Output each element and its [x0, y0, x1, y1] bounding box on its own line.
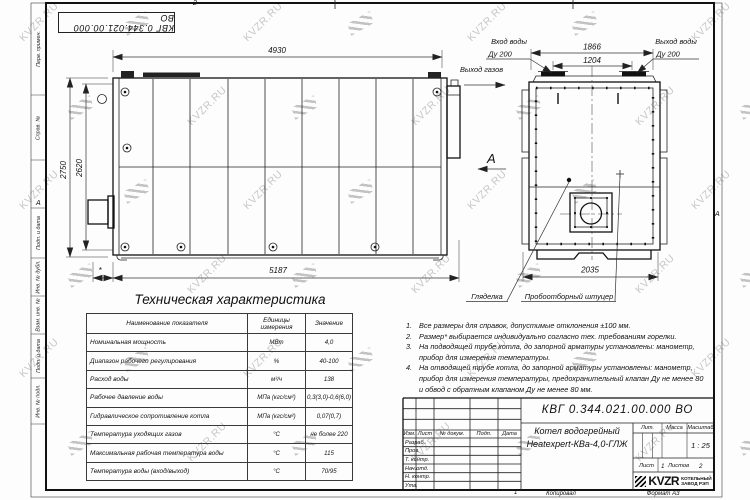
tb-col-list: Лист	[416, 431, 434, 437]
spec-header-name: Наименование показателя	[87, 314, 248, 334]
drawing-sheet: KVZR.RUKVZR.RUKVZR.RUKVZR.RUKVZR.RUKVZR.…	[0, 0, 750, 500]
tb-col-podp: Подп.	[470, 431, 498, 437]
tb-sheet-label: Лист	[639, 463, 654, 469]
field-inv-dubl: Инв. № дубл.	[31, 258, 46, 296]
dim-2035: 2035	[580, 266, 599, 275]
tb-row-nachotd: Нач.отд.	[405, 466, 429, 472]
sampling-fitting-label: Пробоотборный штуцер	[525, 292, 613, 301]
field-sprav-no: Справ. №	[31, 95, 46, 160]
spec-table-title: Техническая характеристика	[125, 292, 335, 307]
dim-1866: 1866	[583, 43, 601, 52]
tb-col-data: Дата	[498, 431, 521, 437]
tb-scale-label: Масштаб	[687, 425, 714, 431]
field-podp-data-2: Подп. и дата	[31, 334, 46, 378]
water-outlet-label: Выход воды	[655, 37, 697, 46]
tb-scale-value: 1 : 25	[687, 441, 714, 450]
spec-row: Расход водым³/ч138	[87, 370, 353, 388]
dim-star: *	[98, 266, 102, 275]
sight-glass-mark	[567, 178, 571, 182]
spec-row: Рабочее давление водыМПа (кгс/см²)0,3(3,…	[87, 389, 353, 407]
tb-row-utv: Утв.	[405, 483, 418, 489]
company-line2: ЗАВОД РЭП	[681, 481, 712, 486]
dim-5187: 5187	[269, 266, 287, 275]
inverted-doc-number: КВГ 0.344.021.00.000 ВО	[59, 13, 174, 33]
spec-table: Наименование показателя Единицы измерени…	[86, 313, 352, 481]
tb-mass-label: Масса	[662, 425, 687, 431]
note-item: 1.Все размеры для справок, допустимые от…	[406, 321, 708, 332]
tb-col-izm: Изм.	[403, 431, 416, 437]
dim-2750: 2750	[59, 161, 68, 180]
tb-row-razrab: Разраб.	[405, 440, 425, 446]
spec-row: Гидравлическое сопротивление котлаМПа (к…	[87, 407, 353, 425]
format-label: Формат А3	[638, 491, 688, 497]
kvzr-logo: KVZR КОТЕЛЬНЫЙ ЗАВОД РЭП	[634, 473, 713, 489]
spec-header-row: Наименование показателя Единицы измерени…	[87, 314, 353, 334]
water-inlet-dn: Ду 200	[487, 50, 512, 59]
product-title-line2: Heatexpert-КВа-4,0-ГЛЖ	[521, 439, 633, 449]
spec-row: Номинальная мощностьМВт4,0	[87, 334, 353, 352]
spec-header-value: Значение	[306, 314, 353, 334]
doc-number: КВГ 0.344.021.00.000 ВО	[521, 404, 714, 416]
gas-outlet-label: Выход газов	[460, 65, 503, 74]
kvzr-logo-icon	[635, 476, 646, 487]
water-inlet-label: Вход воды	[491, 37, 527, 46]
field-vzam-inv: Взам. инв. №	[31, 296, 46, 334]
tb-row-nkontr: Н. контр.	[405, 474, 430, 480]
boiler-side-view: 4930 2750 2620 * 5187 Выход газов А	[59, 46, 506, 282]
zone-mark-right: А	[715, 211, 720, 218]
water-outlet-dn: Ду 200	[655, 50, 680, 59]
tb-sheets-label: Листов	[668, 463, 689, 469]
copied-label: Копировал	[536, 491, 586, 497]
spec-header-units: Единицы измерения	[248, 314, 306, 334]
zone-mark-left: А	[36, 200, 41, 207]
field-podp-data-1: Подп. и дата	[31, 208, 46, 258]
field-inv-podl: Инв. № подл.	[31, 378, 46, 424]
dim-1204: 1204	[583, 56, 601, 65]
note-item: 3.На подводящей трубе котла, до запорной…	[406, 342, 708, 363]
zone-mark-top: 2	[193, 0, 197, 7]
spec-row: Диапазон рабочего регулирования%40-100	[87, 352, 353, 370]
zone-mark-bottom: 1	[514, 490, 517, 496]
tb-sheets-value: 2	[699, 463, 702, 470]
notes-list: 1.Все размеры для справок, допустимые от…	[406, 321, 708, 395]
tb-sheet-value: 1	[661, 463, 664, 470]
tb-col-docnum: № докум.	[434, 431, 470, 437]
tb-row-tkontr: Т. контр.	[405, 457, 429, 463]
kvzr-logo-text: KVZR	[648, 474, 679, 488]
inverted-corner-stamp: КВГ 0.344.021.00.000 ВО	[58, 12, 175, 33]
dim-2620: 2620	[75, 159, 84, 178]
spec-row: Температура уходящих газов°Сне более 220	[87, 425, 353, 443]
dim-4930: 4930	[268, 46, 286, 55]
spec-row: Максимальная рабочая температура воды°С1…	[87, 444, 353, 462]
view-a-label: А	[486, 151, 496, 166]
sight-glass-label: Гляделка	[471, 292, 503, 301]
product-title-line1: Котел водогрейный	[521, 426, 633, 436]
tb-lit-label: Лит.	[633, 425, 662, 431]
note-item: 2.Размер* выбирается индивидуально согла…	[406, 332, 708, 343]
burner-opening	[570, 193, 612, 232]
bolt-marks	[121, 88, 441, 251]
note-item: 4.На отводящей трубе котла, до запорной …	[406, 363, 708, 395]
field-perv-primen: Перв. примен.	[31, 3, 46, 95]
tb-row-prov: Пров.	[405, 448, 420, 454]
spec-row: Температура воды (вход/выход)°С70/95	[87, 462, 353, 480]
